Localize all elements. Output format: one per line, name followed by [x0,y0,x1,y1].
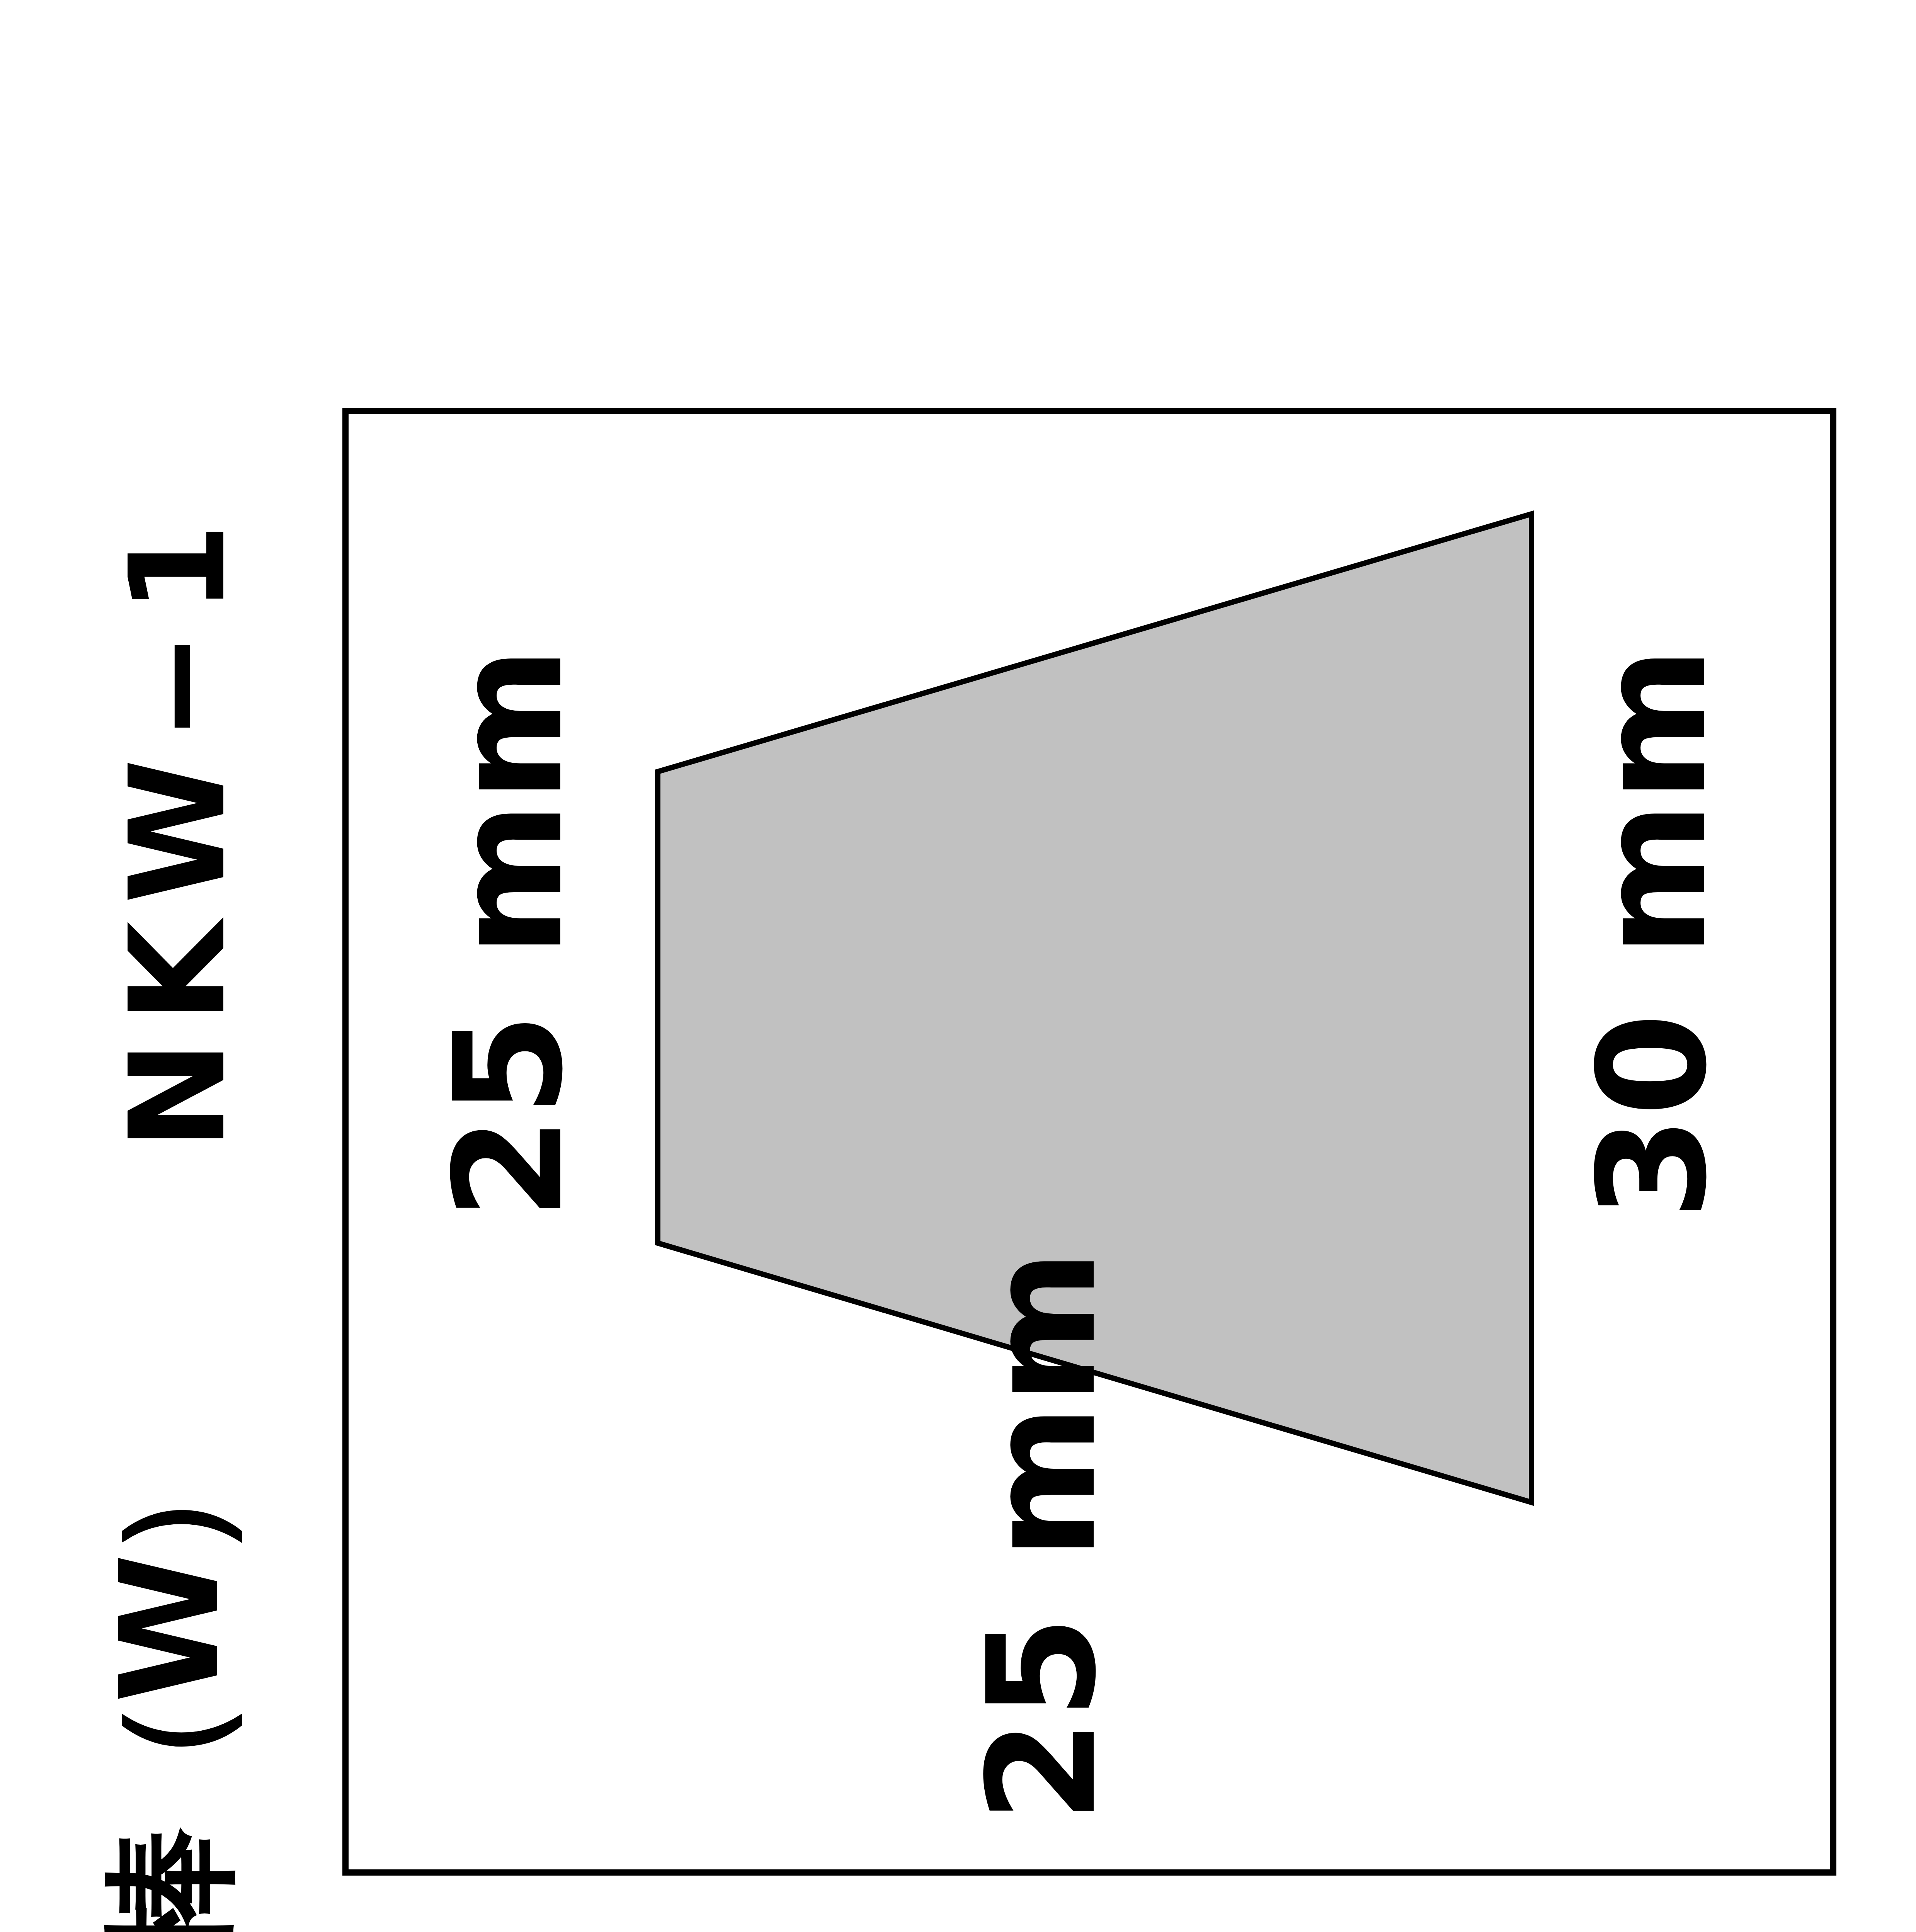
product-title: 軟質目地棒（W） [102,1430,238,1932]
dim-bottom-width-label: 30 mm [1579,647,1727,1220]
dim-top-width-value: 25 [435,1013,584,1220]
dim-bottom-width-value: 30 [1579,1013,1727,1220]
model-number: NKW−1 [112,505,243,1150]
dim-height-unit: mm [968,1250,1117,1560]
spec-sheet-page: { "document": { "product_name": "軟質目地棒（W… [0,0,1916,1932]
dim-height-value: 25 [968,1616,1117,1823]
dim-top-width-label: 25 mm [435,647,584,1220]
dim-bottom-width-unit: mm [1579,647,1727,957]
rotated-drawing-canvas: 軟質目地棒（W） NKW−1 25 mm 30 mm 25 mm 定尺2m [0,0,1916,1932]
dim-top-width-unit: mm [435,647,584,957]
dim-height-label: 25 mm [968,1250,1117,1823]
